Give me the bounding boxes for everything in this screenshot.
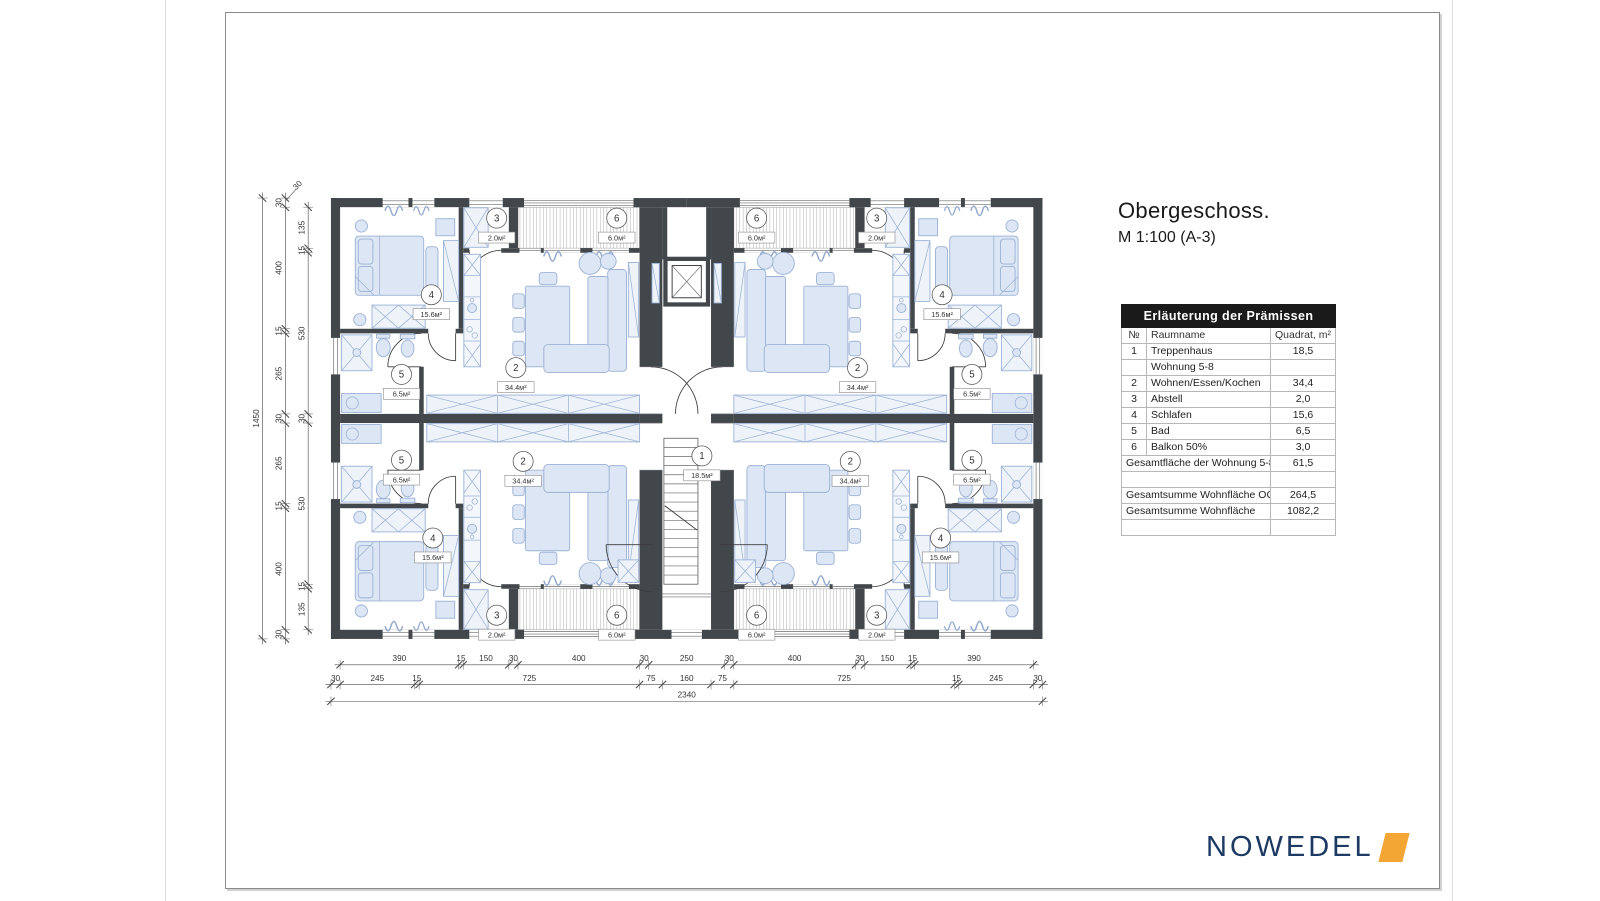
dim-value: 400 <box>275 562 284 576</box>
living-furniture <box>513 252 639 372</box>
dim-value: 160 <box>680 674 694 683</box>
room-area: 6.0м² <box>748 233 766 242</box>
room-label: 56.5м² <box>383 450 419 485</box>
room-area: 34.4м² <box>839 477 861 486</box>
page-title: Obergeschoss. <box>1118 198 1270 224</box>
dim-value: 150 <box>881 654 895 663</box>
dim-value: 1450 <box>252 409 261 428</box>
room-area: 6.0м² <box>608 233 626 242</box>
table-cell: Wohnung 5-8 <box>1147 360 1271 376</box>
table-row: 3Abstell2,0 <box>1122 392 1336 408</box>
table-cell: 61,5 <box>1271 456 1336 472</box>
page-subtitle: M 1:100 (A-3) <box>1118 229 1270 247</box>
room-area: 2.0м² <box>868 233 886 242</box>
dim-value: 725 <box>837 674 851 683</box>
table-cell: 4 <box>1122 408 1147 424</box>
room-label: 56.5м² <box>954 364 990 399</box>
dim-value: 245 <box>989 674 1003 683</box>
table-row: Gesamtfläche der Wohnung 5-861,5 <box>1122 456 1336 472</box>
dim-value: 15 <box>275 326 284 336</box>
table-cell: Bad <box>1147 424 1271 440</box>
room-number: 6 <box>614 611 619 622</box>
room-area: 6.0м² <box>608 630 626 639</box>
dim-value: 2340 <box>678 691 697 700</box>
dim-value: 245 <box>370 674 384 683</box>
table-cell: 3 <box>1122 392 1147 408</box>
dim-value: 30 <box>298 413 307 423</box>
dim-value: 30 <box>725 654 735 663</box>
room-area: 6.5м² <box>963 475 981 484</box>
dim-value: 30 <box>331 674 341 683</box>
table-cell: 2,0 <box>1271 392 1336 408</box>
table-row: Gesamtsumme Wohnfläche OG264,5 <box>1122 488 1336 504</box>
logo-text: NOWEDEL <box>1206 831 1374 864</box>
apartment-quadrant <box>331 418 687 638</box>
table-title: Erläuterung der Prämissen <box>1122 305 1336 328</box>
room-number: 5 <box>399 370 404 381</box>
table-cell: 2 <box>1122 376 1147 392</box>
table-cell <box>1122 360 1147 376</box>
room-area: 6.0м² <box>748 630 766 639</box>
room-label: 234.4м² <box>832 451 868 486</box>
room-number: 3 <box>494 213 499 224</box>
dim-value: 390 <box>393 654 407 663</box>
table-cell <box>1271 360 1336 376</box>
table-cell: 5 <box>1122 424 1147 440</box>
room-number: 2 <box>855 363 860 374</box>
room-number: 6 <box>754 611 759 622</box>
dim-value: 15 <box>298 581 307 591</box>
dim-value: 75 <box>646 674 656 683</box>
room-area: 15.6м² <box>930 553 952 562</box>
table-row <box>1122 472 1336 488</box>
table-row: 5Bad6,5 <box>1122 424 1336 440</box>
table-cell: Balkon 50% <box>1147 440 1271 456</box>
dim-value: 15 <box>412 674 422 683</box>
room-label: 234.4м² <box>505 451 541 486</box>
table-row: 6Balkon 50%3,0 <box>1122 440 1336 456</box>
room-area: 2.0м² <box>868 630 886 639</box>
table-cell <box>1271 472 1336 488</box>
room-area: 34.4м² <box>505 383 527 392</box>
table-row: 2Wohnen/Essen/Kochen34,4 <box>1122 376 1336 392</box>
room-number: 3 <box>494 611 499 622</box>
table-cell: Quadrat, m² <box>1271 328 1336 344</box>
table-cell: 34,4 <box>1271 376 1336 392</box>
table-cell: Wohnen/Essen/Kochen <box>1147 376 1271 392</box>
image-edge-right <box>1452 0 1453 901</box>
company-logo: NOWEDEL <box>1206 831 1406 864</box>
room-area: 2.0м² <box>488 233 506 242</box>
room-area: 2.0м² <box>488 630 506 639</box>
dim-value: 135 <box>298 220 307 234</box>
dim-value: 15 <box>298 245 307 255</box>
area-legend: Erläuterung der Prämissen №RaumnameQuadr… <box>1121 304 1335 536</box>
wardrobe-strip <box>427 395 640 413</box>
table-cell: Abstell <box>1147 392 1271 408</box>
table-cell: Gesamtsumme Wohnfläche <box>1122 504 1271 520</box>
area-table: Erläuterung der Prämissen №RaumnameQuadr… <box>1121 304 1336 536</box>
room-number: 2 <box>520 457 525 468</box>
table-cell: 3,0 <box>1271 440 1336 456</box>
room-area: 15.6м² <box>422 553 444 562</box>
dim-value: 75 <box>718 674 728 683</box>
table-cell: 1 <box>1122 344 1147 360</box>
table-cell: № <box>1122 328 1147 344</box>
dim-value: 400 <box>572 654 586 663</box>
dim-value: 30 <box>509 654 519 663</box>
table-cell <box>1122 472 1271 488</box>
room-area: 15.6м² <box>420 310 442 319</box>
dim-value: 30 <box>275 413 284 423</box>
room-number: 4 <box>938 533 944 544</box>
dim-value: 15 <box>952 674 962 683</box>
room-area: 6.5м² <box>963 390 981 399</box>
logo-flag-icon <box>1378 833 1409 862</box>
table-row: 4Schlafen15,6 <box>1122 408 1336 424</box>
dim-value: 390 <box>967 654 981 663</box>
dim-value: 150 <box>479 654 493 663</box>
image-edge-left <box>165 0 166 901</box>
table-cell: 6 <box>1122 440 1147 456</box>
room-number: 3 <box>874 213 879 224</box>
table-cell: 264,5 <box>1271 488 1336 504</box>
room-number: 1 <box>699 451 704 462</box>
dim-value: 265 <box>275 366 284 380</box>
table-cell: Gesamtsumme Wohnfläche OG <box>1122 488 1271 504</box>
room-number: 5 <box>969 455 974 466</box>
kitchen-counter <box>464 254 481 367</box>
dim-value: 265 <box>275 456 284 470</box>
table-row: Gesamtsumme Wohnfläche1082,2 <box>1122 504 1336 520</box>
room-number: 4 <box>429 290 435 301</box>
room-area: 6.5м² <box>393 390 411 399</box>
title-block: Obergeschoss. M 1:100 (A-3) <box>1118 198 1270 247</box>
table-cell: Treppenhaus <box>1147 344 1271 360</box>
room-label: 56.5м² <box>954 450 990 485</box>
dim-leader <box>286 189 296 201</box>
room-number: 6 <box>754 213 759 224</box>
dim-value: 15 <box>456 654 466 663</box>
room-area: 34.4м² <box>847 383 869 392</box>
floor-plan-drawing: 118.5м²415.6м²32.0м²66.0м²234.4м²56.5м²4… <box>251 181 1061 711</box>
dim-value: 135 <box>298 602 307 616</box>
dim-value: 725 <box>523 674 537 683</box>
dim-value: 400 <box>788 654 802 663</box>
apartment-quadrant <box>687 418 1043 638</box>
room-number: 6 <box>614 213 619 224</box>
room-number: 5 <box>399 455 404 466</box>
room-number: 2 <box>513 363 518 374</box>
table-cell: Schlafen <box>1147 408 1271 424</box>
room-label: 56.5м² <box>383 364 419 399</box>
room-number: 4 <box>939 290 945 301</box>
dim-value: 530 <box>298 326 307 340</box>
table-cell <box>1122 520 1271 536</box>
table-cell: 15,6 <box>1271 408 1336 424</box>
room-number: 4 <box>430 533 436 544</box>
table-row <box>1122 520 1336 536</box>
room-area: 34.4м² <box>512 477 534 486</box>
dim-value: 15 <box>908 654 918 663</box>
dim-value: 250 <box>680 654 694 663</box>
dim-value: 30 <box>1033 674 1043 683</box>
table-cell: 18,5 <box>1271 344 1336 360</box>
table-row: 1Treppenhaus18,5 <box>1122 344 1336 360</box>
drawing-sheet: 118.5м²415.6м²32.0м²66.0м²234.4м²56.5м²4… <box>225 12 1440 889</box>
table-cell <box>1271 520 1336 536</box>
table-cell: Raumname <box>1147 328 1271 344</box>
table-cell: 1082,2 <box>1271 504 1336 520</box>
room-number: 3 <box>874 611 879 622</box>
table-cell: 6,5 <box>1271 424 1336 440</box>
room-number: 5 <box>969 370 974 381</box>
dim-value: 15 <box>275 501 284 511</box>
dim-value: 30 <box>855 654 865 663</box>
dim-value: 30 <box>275 198 284 208</box>
room-area: 15.6м² <box>931 310 953 319</box>
dim-value: 30 <box>275 629 284 639</box>
table-row: Wohnung 5-8 <box>1122 360 1336 376</box>
table-column-header: №RaumnameQuadrat, m² <box>1122 328 1336 344</box>
dim-value: 30 <box>291 181 304 192</box>
dim-value: 400 <box>275 261 284 275</box>
dim-value: 530 <box>298 496 307 510</box>
table-cell: Gesamtfläche der Wohnung 5-8 <box>1122 456 1271 472</box>
room-number: 2 <box>848 457 853 468</box>
room-area: 6.5м² <box>393 475 411 484</box>
viewer-canvas: 118.5м²415.6м²32.0м²66.0м²234.4м²56.5м²4… <box>0 0 1600 901</box>
room-area: 18.5м² <box>691 471 713 480</box>
dim-value: 30 <box>640 654 650 663</box>
